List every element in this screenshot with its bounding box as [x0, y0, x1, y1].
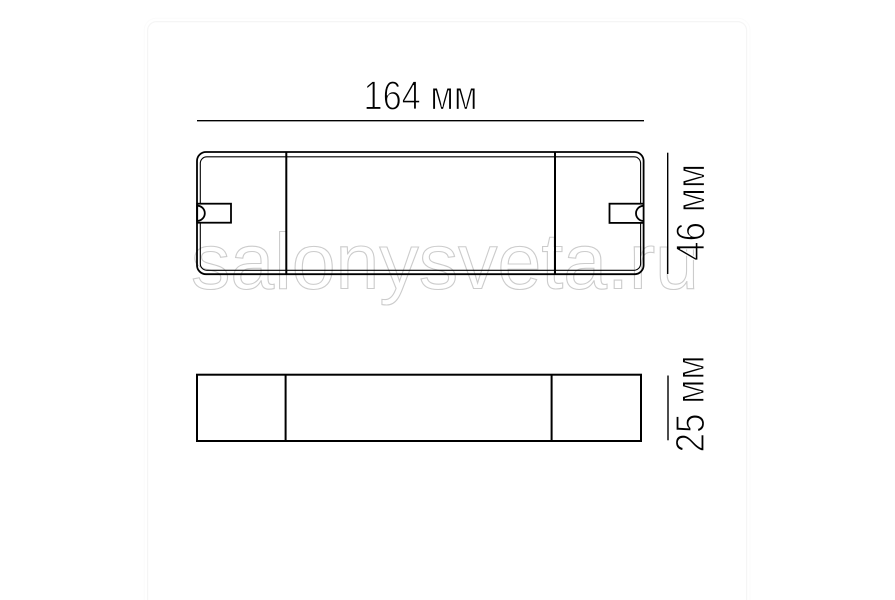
svg-text:164 мм: 164 мм: [364, 72, 478, 118]
svg-text:25 мм: 25 мм: [667, 356, 713, 453]
svg-text:salonysveta.ru: salonysveta.ru: [191, 217, 699, 306]
svg-text:46 мм: 46 мм: [668, 164, 714, 261]
